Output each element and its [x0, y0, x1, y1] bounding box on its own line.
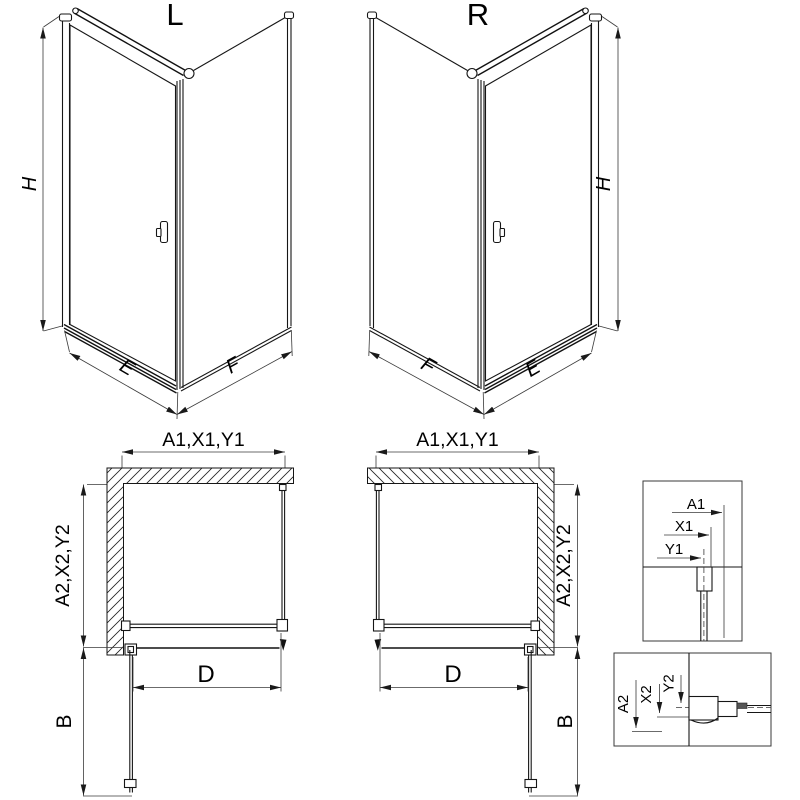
dim-label-a1x1y1-right: A1,X1,Y1 [416, 429, 498, 451]
detail-label-x2: X2 [638, 685, 655, 703]
dim-label-a2x2y2-right: A2,X2,Y2 [553, 524, 575, 606]
dim-label-d-left: D [197, 661, 214, 688]
technical-drawing-page: L H E F R H F E A1,X1,Y1 A2,X2,Y2 D B A1… [0, 0, 800, 800]
dim-label-height-left: H [19, 176, 41, 191]
detail-bottom-profile: A2 X2 Y2 [614, 653, 771, 746]
dim-label-a1x1y1-left: A1,X1,Y1 [162, 429, 244, 451]
dim-label-d-right: D [444, 661, 461, 688]
dim-label-b-left: B [53, 714, 76, 728]
detail-label-x1: X1 [675, 518, 693, 535]
dim-label-a2x2y2-left: A2,X2,Y2 [52, 524, 74, 606]
detail-wall-profile: A1 X1 Y1 [643, 481, 742, 641]
detail-label-a2: A2 [615, 695, 632, 713]
detail-label-y2: Y2 [661, 674, 678, 692]
shower-enclosure-diagram: L H E F R H F E A1,X1,Y1 A2,X2,Y2 D B A1… [0, 0, 800, 800]
variant-label-right: R [467, 0, 489, 32]
detail-label-y1: Y1 [665, 541, 683, 558]
dim-label-height-right: H [593, 176, 615, 191]
variant-label-left: L [166, 0, 183, 32]
dim-label-b-right: B [554, 714, 577, 728]
detail-label-a1: A1 [687, 496, 705, 513]
